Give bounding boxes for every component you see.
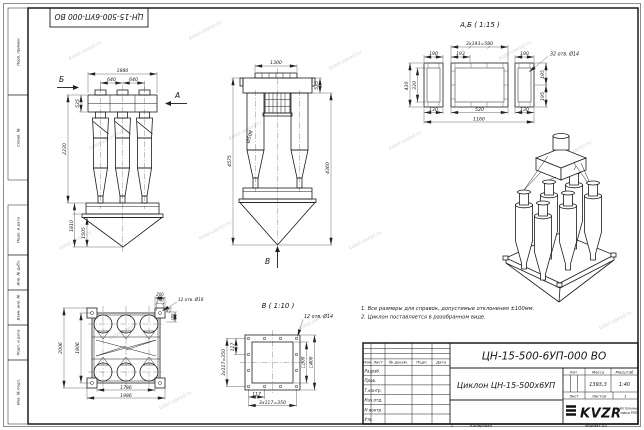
margin-label: Подп. и дата bbox=[16, 329, 21, 356]
margin-label: Инв. № подл. bbox=[16, 379, 21, 405]
dim-label: 3x117=350 bbox=[259, 400, 286, 406]
dim-label: □400 bbox=[309, 356, 314, 368]
scale-label: Масштаб bbox=[615, 369, 634, 374]
dim-label: 4360 bbox=[325, 162, 331, 174]
mass-value: 1393,3 bbox=[589, 382, 607, 388]
stamp-doc-number: ЦН-15-500-6УП-000 ВО bbox=[54, 12, 143, 21]
watermark: kotel-zavod.ru bbox=[228, 120, 263, 142]
note-line: 2. Циклон поставляется в разобранном вид… bbox=[361, 315, 486, 321]
watermark: kotel-zavod.ru bbox=[58, 230, 93, 252]
dim-label: 535 bbox=[314, 81, 320, 90]
dim-label: 3x117=350 bbox=[221, 349, 227, 376]
watermark: kotel-zavod.ru bbox=[68, 40, 103, 62]
dim-label: □300 bbox=[301, 356, 306, 368]
holes-callout: 12 отв. Ø18 bbox=[178, 297, 204, 302]
margin-label: Инв. № дубл. bbox=[16, 260, 21, 286]
scale-value: 1:40 bbox=[619, 382, 630, 388]
view-arrow-label-a: А bbox=[174, 91, 180, 100]
col-podp: Подп. bbox=[416, 359, 428, 364]
dim-label: 1880 bbox=[117, 68, 129, 74]
view-flange-ab: А,Б ( 1:15 ) 3x193=580 190 193 190 32 от… bbox=[404, 21, 579, 124]
dim-label: 40 bbox=[166, 307, 170, 312]
dim-label: 3x193=580 bbox=[466, 41, 493, 47]
dim-label: 117 bbox=[252, 392, 261, 398]
watermark: kotel-zavod.ru bbox=[158, 390, 193, 412]
view-arrow-label-b: Б bbox=[59, 75, 64, 84]
view-front: 1880 640 640 535 2230 1810 1505 Б А bbox=[57, 68, 187, 252]
dim-label: 1505 bbox=[81, 227, 87, 239]
dim-label: 2006 bbox=[58, 342, 64, 354]
note-line: 1. Все размеры для справок, допустимые о… bbox=[361, 306, 534, 312]
watermark: kotel-zavod.ru bbox=[188, 20, 223, 42]
watermark: kotel-zavod.ru bbox=[598, 310, 633, 332]
lit-label: Лит. bbox=[569, 369, 579, 374]
drawing-sheet: kotel-zavod.ru kotel-zavod.ru kotel-zavo… bbox=[0, 0, 644, 430]
dim-label: 330 bbox=[412, 81, 418, 90]
view-title: А,Б ( 1:15 ) bbox=[459, 21, 500, 29]
dim-label: 4575 bbox=[227, 155, 233, 167]
sheet-label: Лист bbox=[568, 394, 579, 399]
col-izm: Изм bbox=[363, 359, 371, 364]
dim-label: 190 bbox=[520, 51, 529, 57]
col-doc: № докум. bbox=[388, 359, 408, 364]
row-label: Н.контр. bbox=[365, 407, 383, 412]
watermark: kotel-zavod.ru bbox=[348, 230, 383, 252]
dim-label: 200 bbox=[171, 313, 175, 321]
margin-label: Взам. инв. № bbox=[16, 295, 21, 321]
watermark: kotel-zavod.ru bbox=[328, 50, 363, 72]
watermark: kotel-zavod.ru bbox=[298, 310, 333, 332]
doc-number: ЦН-15-500-6УП-000 ВО bbox=[482, 351, 606, 363]
dim-label: 1806 bbox=[75, 342, 81, 354]
holes-callout: 12 отв. Ø14 bbox=[304, 313, 333, 320]
dim-label: 2230 bbox=[62, 143, 68, 155]
view-title: В ( 1:10 ) bbox=[262, 302, 295, 310]
margin-label: Подп. и дата bbox=[16, 216, 21, 243]
watermark: kotel-zavod.ru bbox=[498, 40, 533, 62]
dim-label: 1986 bbox=[120, 393, 132, 399]
dim-label: 430 bbox=[404, 82, 410, 91]
watermark: kotel-zavod.ru bbox=[388, 130, 423, 152]
dim-label: 1160 bbox=[473, 117, 485, 123]
sheets-value: 1 bbox=[624, 394, 626, 399]
dim-label: 195 bbox=[540, 92, 546, 101]
view-side: 1300 535 Ø508 4575 4360 В bbox=[227, 60, 333, 268]
row-label: Нач.отд. bbox=[365, 398, 383, 403]
row-label: Утв. bbox=[365, 417, 373, 422]
dim-label: 117 bbox=[230, 343, 236, 352]
logo-text: KVZR bbox=[580, 407, 622, 422]
dim-label: 193 bbox=[456, 51, 465, 57]
margin-label: Справ. № bbox=[16, 128, 21, 147]
dim-label: 640 bbox=[129, 77, 138, 83]
company-line: завод РЭП bbox=[620, 411, 638, 415]
notes: 1. Все размеры для справок, допустимые о… bbox=[361, 306, 534, 321]
view-isometric bbox=[503, 134, 616, 303]
title-block: Изм Лист № докум. Подп. Дата Разраб. Про… bbox=[363, 343, 639, 424]
dim-label: 190 bbox=[429, 51, 438, 57]
holes-callout: 32 отв. Ø14 bbox=[550, 51, 579, 58]
logo-icon bbox=[566, 407, 576, 415]
sheets-label: Листов bbox=[591, 394, 607, 399]
dim-label: 520 bbox=[475, 107, 484, 113]
dim-label: 535 bbox=[75, 99, 81, 108]
dim-label: 200 bbox=[156, 292, 164, 297]
row-label: Разраб. bbox=[365, 369, 381, 374]
view-plan: 200 140 12 отв. Ø18 40 200 2006 1806 178… bbox=[58, 292, 204, 400]
watermark: kotel-zavod.ru bbox=[198, 220, 233, 242]
dim-label: 195 bbox=[540, 70, 546, 79]
product-name: Циклон ЦН-15-500х6УП bbox=[457, 381, 555, 390]
dim-label: 130 bbox=[429, 107, 438, 113]
dim-label: 140 bbox=[156, 298, 164, 303]
col-data: Дата bbox=[435, 359, 447, 364]
view-arrow-label-v: В bbox=[265, 257, 270, 266]
dim-label: 1786 bbox=[120, 385, 132, 391]
row-label: Т.контр. bbox=[365, 388, 382, 393]
col-list: Лист bbox=[372, 359, 383, 364]
margin-label: Перв. примен. bbox=[16, 37, 21, 66]
dim-label: 640 bbox=[107, 77, 116, 83]
dim-label: 1810 bbox=[69, 220, 75, 232]
dim-label: 130 bbox=[520, 107, 529, 113]
mass-label: Масса bbox=[592, 369, 605, 374]
view-flange-v: В ( 1:10 ) 117 3x117=350 □300 □400 117 3… bbox=[221, 302, 333, 407]
row-label: Пров. bbox=[365, 378, 377, 383]
company-line: Котельный bbox=[620, 407, 639, 411]
dim-label: 1300 bbox=[270, 60, 282, 66]
